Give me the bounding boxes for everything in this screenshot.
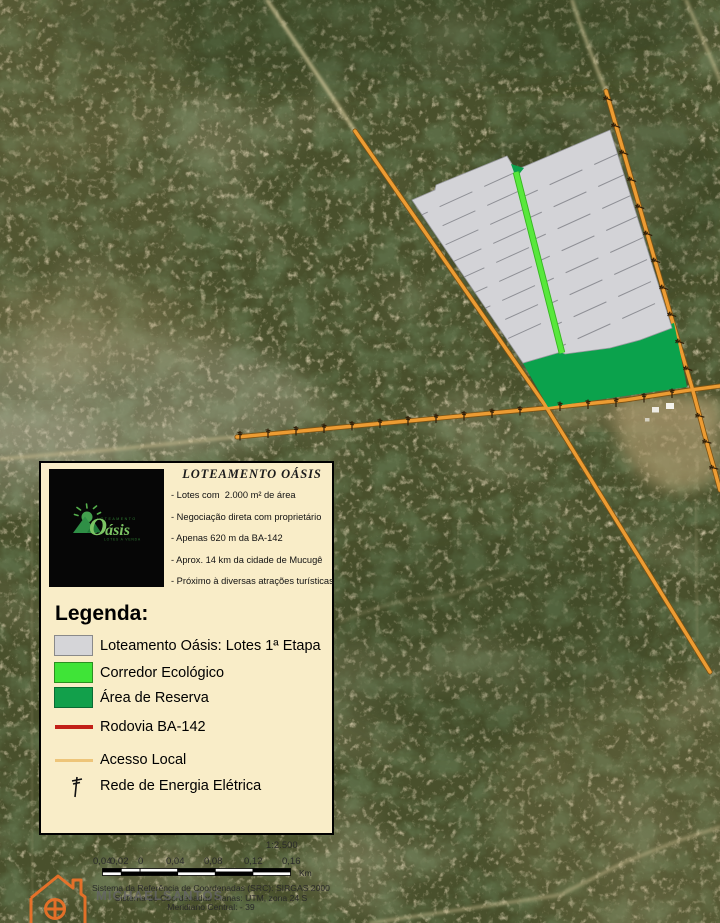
svg-text:LOTES A VENDA: LOTES A VENDA — [104, 538, 141, 542]
svg-text:Km: Km — [299, 868, 312, 878]
